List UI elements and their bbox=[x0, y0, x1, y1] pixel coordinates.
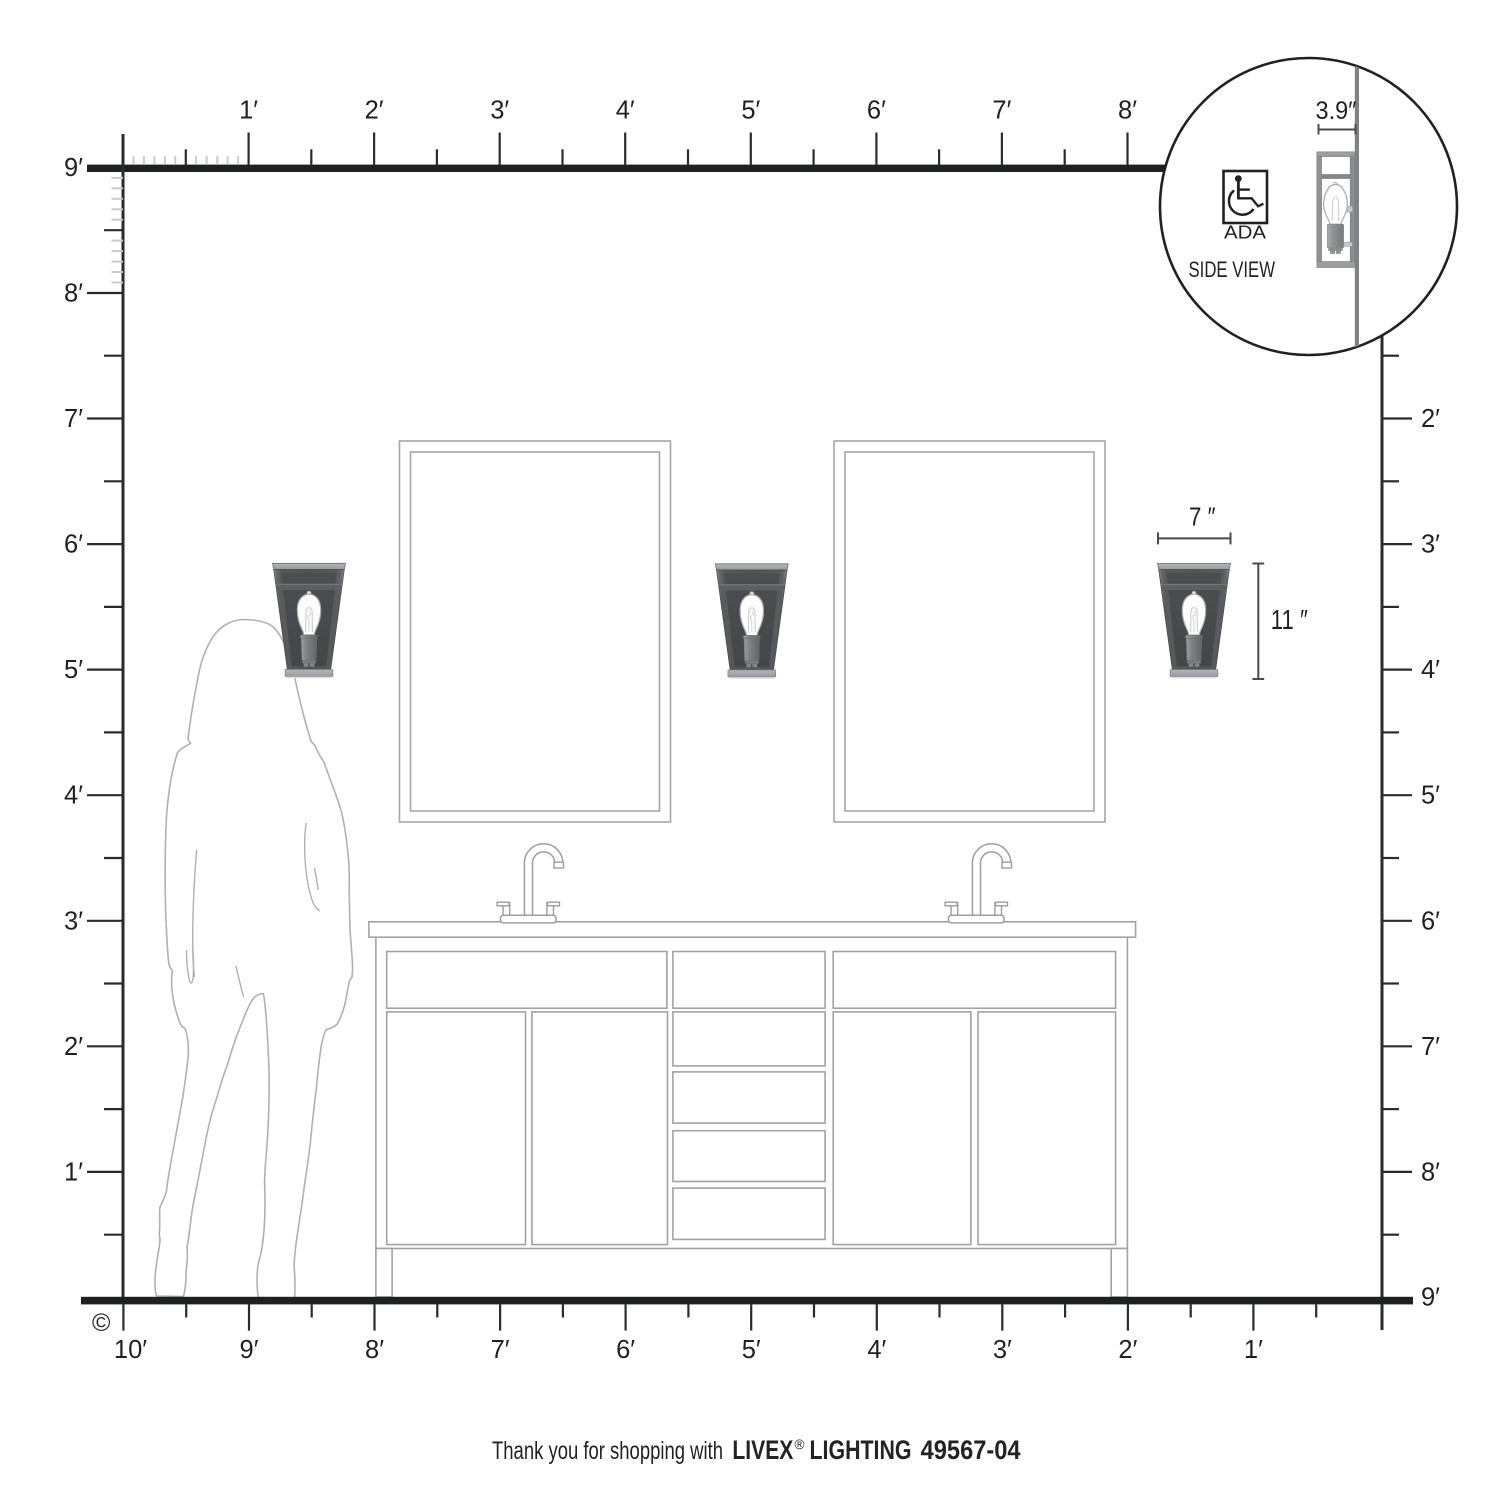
svg-text:6′: 6′ bbox=[64, 531, 83, 559]
svg-text:3′: 3′ bbox=[1421, 531, 1440, 559]
svg-text:8′: 8′ bbox=[64, 280, 83, 308]
svg-text:3′: 3′ bbox=[993, 1336, 1012, 1364]
svg-text:3′: 3′ bbox=[64, 907, 83, 935]
svg-text:5′: 5′ bbox=[742, 1336, 761, 1364]
svg-text:5′: 5′ bbox=[1421, 782, 1440, 810]
svg-text:10′: 10′ bbox=[114, 1336, 147, 1364]
svg-text:5′: 5′ bbox=[741, 97, 760, 125]
svg-text:9′: 9′ bbox=[1421, 1284, 1440, 1312]
svg-text:6′: 6′ bbox=[616, 1336, 635, 1364]
svg-text:4′: 4′ bbox=[1421, 656, 1440, 684]
svg-text:3.9″: 3.9″ bbox=[1316, 97, 1357, 125]
svg-text:6′: 6′ bbox=[1421, 907, 1440, 935]
svg-text:4′: 4′ bbox=[616, 97, 635, 125]
svg-text:2′: 2′ bbox=[365, 97, 384, 125]
svg-text:9′: 9′ bbox=[240, 1336, 259, 1364]
svg-text:6′: 6′ bbox=[867, 97, 886, 125]
svg-text:11 ″: 11 ″ bbox=[1271, 604, 1308, 635]
svg-text:1′: 1′ bbox=[1244, 1336, 1263, 1364]
svg-text:Thank you for shopping withLIV: Thank you for shopping withLIVEX®LIGHTIN… bbox=[492, 1435, 1021, 1465]
svg-text:SIDE VIEW: SIDE VIEW bbox=[1189, 257, 1276, 282]
svg-text:1′: 1′ bbox=[239, 97, 258, 125]
svg-text:5′: 5′ bbox=[64, 656, 83, 684]
svg-text:9′: 9′ bbox=[64, 154, 83, 182]
svg-text:2′: 2′ bbox=[1118, 1336, 1137, 1364]
svg-text:8′: 8′ bbox=[365, 1336, 384, 1364]
svg-text:1′: 1′ bbox=[64, 1158, 83, 1186]
svg-text:8′: 8′ bbox=[1421, 1158, 1440, 1186]
svg-text:7′: 7′ bbox=[491, 1336, 510, 1364]
svg-text:7′: 7′ bbox=[1421, 1033, 1440, 1061]
svg-text:ADA: ADA bbox=[1224, 223, 1266, 243]
svg-text:3′: 3′ bbox=[490, 97, 509, 125]
svg-text:7 ″: 7 ″ bbox=[1189, 504, 1216, 532]
svg-text:8′: 8′ bbox=[1118, 97, 1137, 125]
svg-text:2′: 2′ bbox=[1421, 405, 1440, 433]
svg-text:©: © bbox=[92, 1309, 111, 1337]
svg-text:4′: 4′ bbox=[64, 782, 83, 810]
svg-text:4′: 4′ bbox=[867, 1336, 886, 1364]
svg-text:7′: 7′ bbox=[992, 97, 1011, 125]
svg-text:2′: 2′ bbox=[64, 1033, 83, 1061]
svg-text:7′: 7′ bbox=[64, 405, 83, 433]
